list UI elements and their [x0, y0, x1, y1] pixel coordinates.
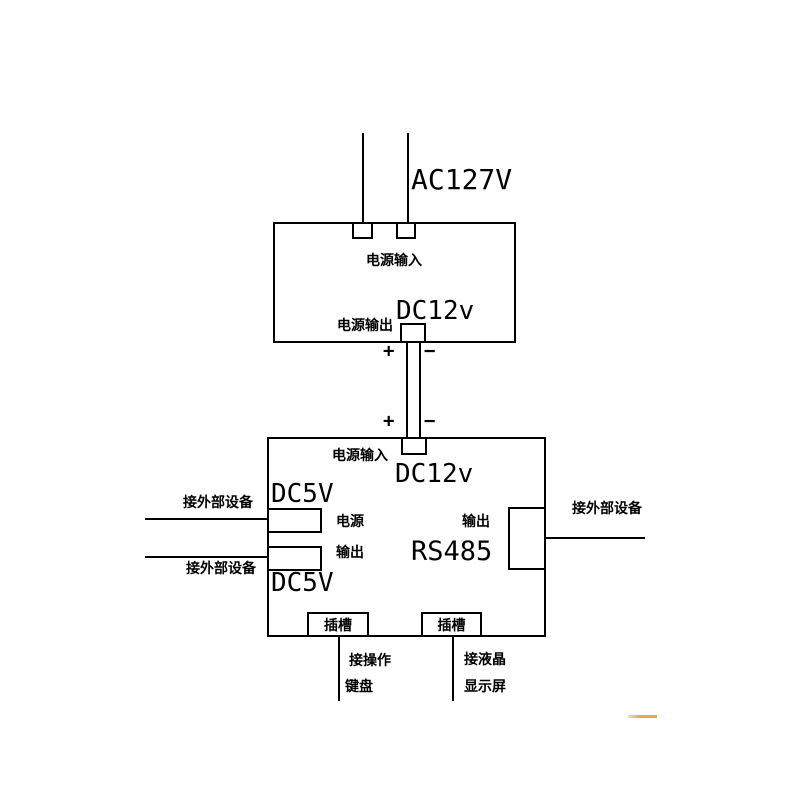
psu-output-voltage-label: DC12v: [396, 298, 474, 324]
slot-left-label: 插槽: [324, 615, 352, 635]
ac-voltage-label: AC127V: [411, 166, 512, 194]
controller-input-voltage-label: DC12v: [395, 461, 473, 487]
psu-dc-output-terminal: [400, 323, 426, 343]
scan-artifact-line: [628, 715, 657, 718]
psu-output-label: 电源输出: [337, 319, 393, 333]
dc5v-output-label: 输出: [336, 546, 364, 560]
dc5v-power-port: [267, 508, 322, 533]
rs485-label: RS485: [411, 538, 492, 565]
slot-right-label: 插槽: [438, 615, 466, 635]
lcd-label-line1: 接液晶: [464, 653, 506, 667]
controller-dc-input-terminal: [401, 437, 427, 455]
psu-input-label: 电源输入: [366, 254, 422, 268]
external-wire-left-top: [145, 518, 267, 520]
polarity-plus-top: +: [383, 342, 394, 361]
external-wire-right: [546, 537, 645, 539]
polarity-minus-bottom: −: [424, 412, 435, 431]
dc5v-bottom-label: DC5V: [271, 570, 334, 596]
controller-input-label: 电源输入: [332, 449, 388, 463]
external-device-left-top-label: 接外部设备: [183, 496, 253, 510]
polarity-minus-top: −: [424, 342, 435, 361]
external-device-left-bottom-label: 接外部设备: [186, 562, 256, 576]
dc5v-power-label: 电源: [336, 515, 364, 529]
external-device-right-label: 接外部设备: [572, 502, 642, 516]
power-wiring-diagram: AC127V 电源输入 DC12v 电源输出 + − + − 电源输入 DC12…: [0, 0, 800, 800]
dc-wire: [406, 341, 421, 439]
keyboard-label-line1: 接操作: [349, 654, 391, 668]
lcd-label-line2: 显示屏: [464, 680, 506, 694]
slot-left: 插槽: [307, 612, 369, 637]
lcd-wire: [452, 637, 454, 701]
keyboard-wire: [338, 637, 340, 701]
psu-ac-terminal-left: [352, 222, 373, 239]
ac-input-wire-left: [362, 133, 364, 224]
polarity-plus-bottom: +: [383, 412, 394, 431]
rs485-output-label: 输出: [462, 515, 490, 529]
psu-ac-terminal-right: [396, 222, 416, 239]
external-wire-left-bottom: [145, 556, 267, 558]
ac-input-wire-right: [407, 133, 409, 224]
psu-box: [273, 222, 516, 343]
slot-right: 插槽: [421, 612, 482, 637]
dc5v-top-label: DC5V: [271, 481, 334, 507]
keyboard-label-line2: 键盘: [345, 680, 373, 694]
rs485-port: [508, 507, 546, 570]
